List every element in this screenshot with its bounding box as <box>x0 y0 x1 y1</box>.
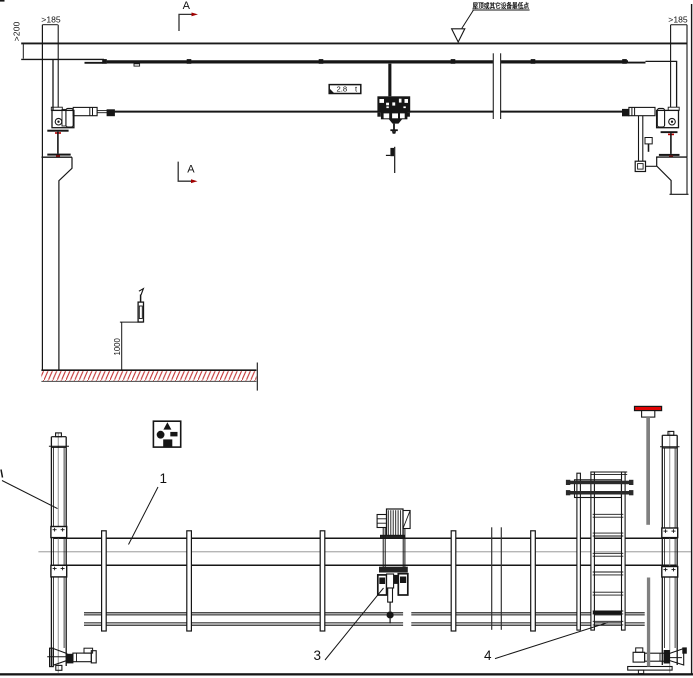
svg-text:A: A <box>187 163 195 175</box>
svg-text:>200: >200 <box>12 21 22 41</box>
svg-text:>185: >185 <box>41 14 61 24</box>
svg-text:3: 3 <box>314 648 322 663</box>
svg-text:1000: 1000 <box>113 337 122 355</box>
svg-text:A: A <box>183 0 191 12</box>
svg-text:>185: >185 <box>668 14 688 24</box>
svg-text:2.8: 2.8 <box>337 85 348 94</box>
svg-text:4: 4 <box>484 648 492 663</box>
svg-text:屋顶或其它设备最低点: 屋顶或其它设备最低点 <box>473 1 530 10</box>
svg-text:1: 1 <box>160 471 168 486</box>
